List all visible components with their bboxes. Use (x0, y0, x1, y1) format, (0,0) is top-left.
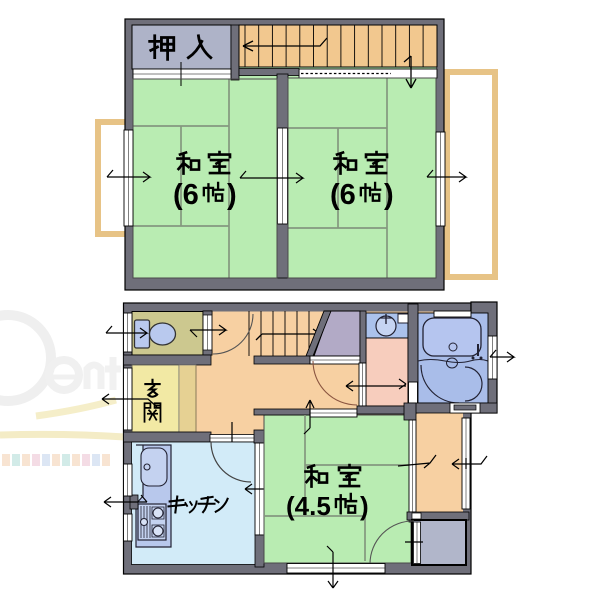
svg-text:(4.5: (4.5 (286, 491, 331, 521)
svg-text:(6: (6 (330, 179, 356, 211)
svg-text:(6: (6 (173, 179, 199, 211)
svg-text:): ) (360, 491, 369, 521)
svg-text:): ) (384, 179, 394, 211)
svg-text:): ) (227, 179, 237, 211)
